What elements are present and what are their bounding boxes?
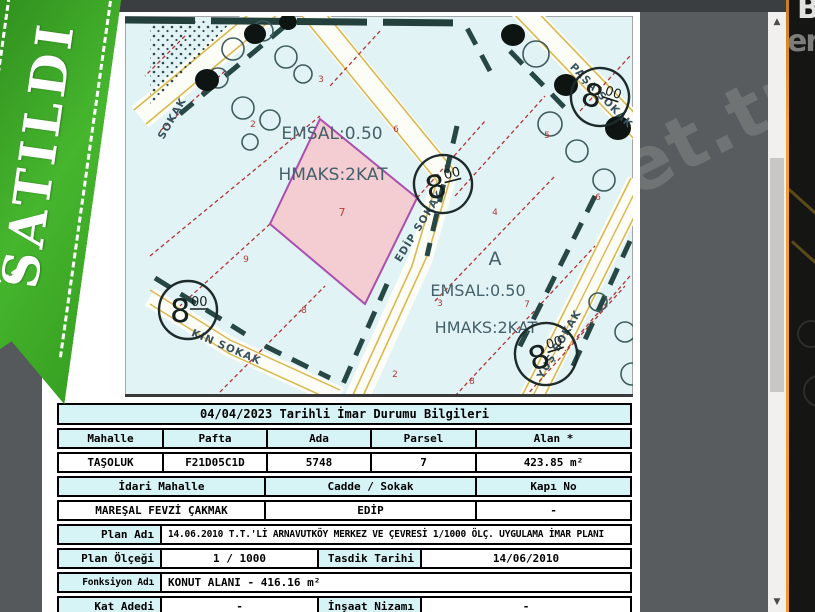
value-plan-olcegi: 1 / 1000 bbox=[160, 550, 317, 567]
svg-text:5: 5 bbox=[544, 131, 550, 141]
label-tasdik-tarihi: Tasdik Tarihi bbox=[317, 550, 420, 567]
value-plan-adi: 14.06.2010 T.T.'Lİ ARNAVUTKÖY MERKEZ VE … bbox=[160, 526, 630, 543]
scroll-up-arrow[interactable]: ▲ bbox=[768, 14, 786, 30]
svg-text:EMSAL:0.50: EMSAL:0.50 bbox=[281, 124, 382, 144]
imar-table: 04/04/2023 Tarihli İmar Durumu Bilgileri… bbox=[57, 403, 632, 612]
svg-text:00: 00 bbox=[191, 295, 208, 310]
parcel-values-row: TAŞOLUK F21D05C1D 5748 7 423.85 m² bbox=[57, 452, 632, 473]
fonksiyon-row: Fonksiyon Adı KONUT ALANI - 416.16 m² bbox=[57, 572, 632, 593]
label-plan-olcegi: Plan Ölçeği bbox=[59, 550, 160, 567]
lightbox-backdrop: et.tr bbox=[640, 12, 768, 612]
scroll-down-arrow[interactable]: ▼ bbox=[768, 594, 786, 610]
plan-olcegi-row: Plan Ölçeği 1 / 1000 Tasdik Tarihi 14/06… bbox=[57, 548, 632, 569]
address-values-row: MAREŞAL FEVZİ ÇAKMAK EDİP - bbox=[57, 500, 632, 521]
value-kat-adedi: - bbox=[160, 598, 317, 612]
plan-adi-row: Plan Adı 14.06.2010 T.T.'Lİ ARNAVUTKÖY M… bbox=[57, 524, 632, 545]
kat-adedi-row: Kat Adedi - İnşaat Nizamı - bbox=[57, 596, 632, 612]
value-tasdik-tarihi: 14/06/2010 bbox=[420, 550, 630, 567]
col-header-alan: Alan * bbox=[475, 430, 630, 447]
col-header-idari-mahalle: İdari Mahalle bbox=[59, 478, 264, 495]
col-header-parsel: Parsel bbox=[370, 430, 475, 447]
svg-text:9: 9 bbox=[243, 255, 249, 265]
col-header-ada: Ada bbox=[266, 430, 370, 447]
label-plan-adi: Plan Adı bbox=[59, 526, 160, 543]
svg-text:8: 8 bbox=[469, 377, 475, 387]
scrollbar[interactable]: ▲ ▼ bbox=[768, 12, 786, 612]
watermark-text: et.tr bbox=[640, 37, 768, 214]
background-map-panel: B en bbox=[789, 0, 815, 612]
label-insaat-nizami: İnşaat Nizamı bbox=[317, 598, 420, 612]
svg-text:8: 8 bbox=[301, 306, 307, 316]
svg-text:A: A bbox=[489, 248, 502, 270]
value-cadde-sokak: EDİP bbox=[264, 502, 475, 519]
svg-text:EMSAL:0.50: EMSAL:0.50 bbox=[430, 281, 525, 300]
zoning-plan-image: 7 EMSAL:0.50 HMAKS:2KAT A EMSAL:0.50 HMA… bbox=[125, 16, 633, 397]
svg-text:8: 8 bbox=[170, 292, 190, 330]
svg-text:HMAKS:2KAT: HMAKS:2KAT bbox=[278, 165, 388, 185]
svg-text:3: 3 bbox=[437, 299, 443, 309]
label-kat-adedi: Kat Adedi bbox=[59, 598, 160, 612]
background-partial-text-bottom: en bbox=[789, 24, 815, 59]
col-header-mahalle: Mahalle bbox=[59, 430, 162, 447]
value-insaat-nizami: - bbox=[420, 598, 630, 612]
value-fonksiyon-adi: KONUT ALANI - 416.16 m² bbox=[160, 574, 630, 591]
svg-text:6: 6 bbox=[595, 193, 601, 203]
value-alan: 423.85 m² bbox=[475, 454, 630, 471]
background-partial-text-top: B bbox=[797, 0, 815, 26]
background-map-circle bbox=[803, 375, 815, 407]
svg-text:2: 2 bbox=[392, 370, 398, 380]
table-title: 04/04/2023 Tarihli İmar Durumu Bilgileri bbox=[57, 403, 632, 425]
background-road-line bbox=[791, 240, 815, 278]
label-fonksiyon-adi: Fonksiyon Adı bbox=[59, 574, 160, 591]
value-pafta: F21D05C1D bbox=[162, 454, 266, 471]
svg-text:4: 4 bbox=[492, 208, 498, 218]
parcel-header-section: Mahalle Pafta Ada Parsel Alan * bbox=[57, 428, 632, 449]
col-header-pafta: Pafta bbox=[162, 430, 266, 447]
col-header-kapi-no: Kapı No bbox=[475, 478, 630, 495]
svg-text:3: 3 bbox=[318, 75, 324, 85]
address-header-section: İdari Mahalle Cadde / Sokak Kapı No bbox=[57, 476, 632, 497]
scrollbar-thumb[interactable] bbox=[770, 158, 784, 392]
highlighted-parcel-number: 7 bbox=[339, 206, 346, 219]
value-kapi-no: - bbox=[475, 502, 630, 519]
svg-text:2: 2 bbox=[250, 120, 256, 130]
value-parsel: 7 bbox=[370, 454, 475, 471]
screenshot-root: 7 EMSAL:0.50 HMAKS:2KAT A EMSAL:0.50 HMA… bbox=[0, 0, 815, 612]
document-page: 7 EMSAL:0.50 HMAKS:2KAT A EMSAL:0.50 HMA… bbox=[42, 12, 640, 612]
svg-text:6: 6 bbox=[393, 125, 399, 135]
value-ada: 5748 bbox=[266, 454, 370, 471]
background-road-line bbox=[789, 187, 815, 225]
background-map-circle bbox=[797, 320, 815, 348]
svg-text:7: 7 bbox=[524, 300, 530, 310]
value-idari-mahalle: MAREŞAL FEVZİ ÇAKMAK bbox=[59, 502, 264, 519]
value-mahalle: TAŞOLUK bbox=[59, 454, 162, 471]
col-header-cadde-sokak: Cadde / Sokak bbox=[264, 478, 475, 495]
